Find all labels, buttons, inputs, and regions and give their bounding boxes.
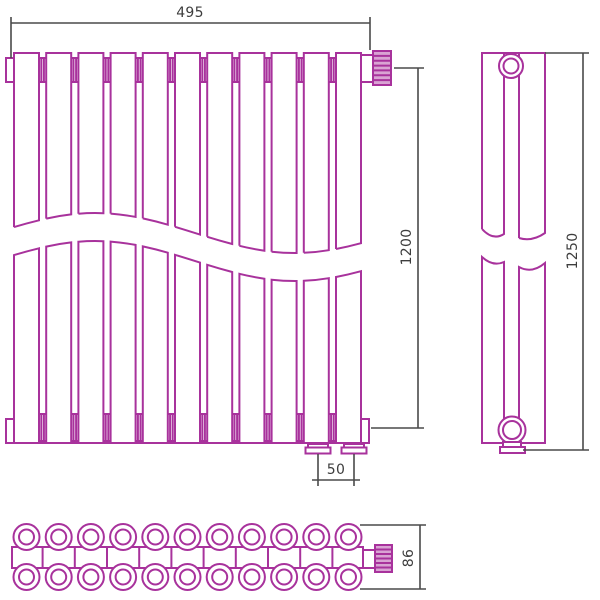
section-tube-top bbox=[142, 524, 168, 550]
tube-lower bbox=[46, 242, 71, 443]
side-tube-upper bbox=[482, 53, 504, 237]
side-tube-lower bbox=[519, 263, 545, 443]
tube-lower bbox=[272, 280, 297, 443]
section-tube-top bbox=[239, 524, 265, 550]
section-tube-bottom bbox=[336, 564, 362, 590]
section-tube-top bbox=[110, 524, 136, 550]
tube-lower bbox=[239, 274, 264, 443]
left-top-tab bbox=[6, 58, 14, 82]
section-tube-top bbox=[175, 524, 201, 550]
dim-depth-label: 86 bbox=[401, 549, 417, 567]
dimension-lines bbox=[11, 17, 589, 589]
tube-upper bbox=[239, 53, 264, 251]
tube-lower bbox=[304, 278, 329, 443]
tube-lower bbox=[14, 248, 39, 443]
left-bottom-tab bbox=[6, 419, 14, 443]
section-tube-bottom bbox=[46, 564, 72, 590]
tube-lower bbox=[207, 265, 232, 443]
side-tube-upper bbox=[519, 53, 545, 239]
section-tube-bottom bbox=[110, 564, 136, 590]
section-tube-top bbox=[46, 524, 72, 550]
tube-lower bbox=[111, 242, 136, 443]
side-view bbox=[482, 53, 545, 453]
valve-stem-top-view bbox=[363, 550, 375, 568]
right-bottom-tab bbox=[361, 419, 369, 443]
dim-connection-spacing-label: 50 bbox=[327, 462, 345, 478]
tube-upper bbox=[14, 53, 39, 227]
valve-stem bbox=[361, 55, 373, 82]
section-tube-top bbox=[336, 524, 362, 550]
section-tube-bottom bbox=[271, 564, 297, 590]
section-tube-top bbox=[78, 524, 104, 550]
section-tube-top bbox=[14, 524, 40, 550]
tube-upper bbox=[78, 53, 103, 214]
section-tube-bottom bbox=[175, 564, 201, 590]
section-tube-top bbox=[271, 524, 297, 550]
section-tube-bottom bbox=[78, 564, 104, 590]
drawing-canvas: 495 1200 1250 50 86 bbox=[0, 0, 600, 600]
tube-lower bbox=[143, 246, 168, 443]
connection-pipe-flange bbox=[342, 448, 367, 454]
section-tube-bottom bbox=[239, 564, 265, 590]
front-view bbox=[6, 51, 391, 454]
section-tube-bottom bbox=[303, 564, 329, 590]
side-fitting-flange bbox=[500, 447, 525, 453]
tube-upper bbox=[207, 53, 232, 244]
tube-upper bbox=[111, 53, 136, 217]
tube-upper bbox=[143, 53, 168, 225]
radiator-technical-drawing: 495 1200 1250 50 86 bbox=[0, 0, 600, 600]
dim-overall-height-label: 1250 bbox=[565, 233, 581, 270]
top-view bbox=[12, 524, 392, 590]
dimension-labels: 495 1200 1250 50 86 bbox=[176, 5, 581, 567]
tube-lower bbox=[78, 241, 103, 443]
dim-height-label: 1200 bbox=[399, 229, 415, 266]
tube-upper bbox=[272, 53, 297, 253]
tube-upper bbox=[304, 53, 329, 253]
tube-upper bbox=[46, 53, 71, 219]
dim-width-label: 495 bbox=[176, 5, 204, 21]
section-tube-bottom bbox=[207, 564, 233, 590]
section-tube-top bbox=[303, 524, 329, 550]
section-tube-bottom bbox=[142, 564, 168, 590]
section-tube-bottom bbox=[14, 564, 40, 590]
side-tube-lower bbox=[482, 257, 504, 443]
tube-lower bbox=[336, 271, 361, 443]
tube-lower bbox=[175, 255, 200, 443]
section-tube-top bbox=[207, 524, 233, 550]
connection-pipe-flange bbox=[306, 448, 331, 454]
tube-upper bbox=[175, 53, 200, 235]
tube-upper bbox=[336, 53, 361, 249]
